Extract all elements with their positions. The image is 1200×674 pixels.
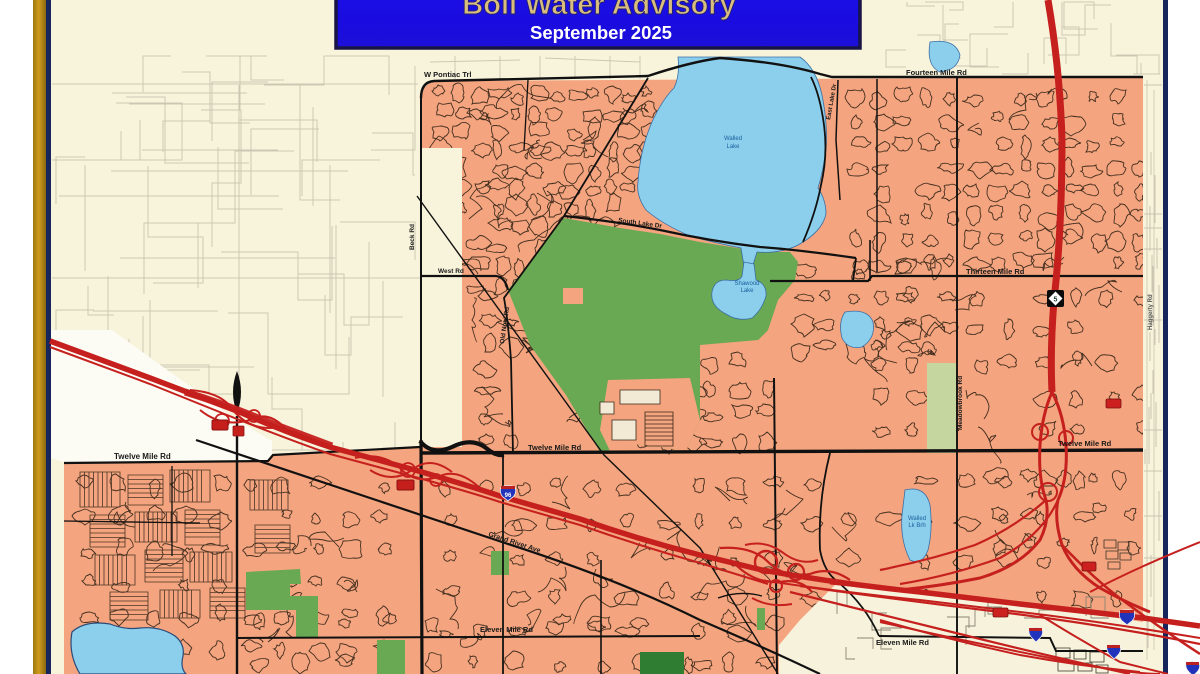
svg-text:W Pontiac Trl: W Pontiac Trl <box>424 70 472 79</box>
svg-text:Shawood: Shawood <box>734 281 759 287</box>
svg-text:West Rd: West Rd <box>438 268 464 275</box>
svg-text:5: 5 <box>1054 297 1058 304</box>
svg-text:96: 96 <box>505 493 512 499</box>
svg-text:Meadowbrook Rd: Meadowbrook Rd <box>957 376 964 430</box>
svg-text:Beck Rd: Beck Rd <box>409 224 416 250</box>
svg-text:Walled: Walled <box>908 516 926 522</box>
svg-text:Boil Water Advisory: Boil Water Advisory <box>462 0 735 21</box>
svg-text:Twelve Mile Rd: Twelve Mile Rd <box>114 452 171 461</box>
svg-text:Eleven Mile Rd: Eleven Mile Rd <box>480 625 533 634</box>
svg-text:Fourteen Mile Rd: Fourteen Mile Rd <box>906 68 967 77</box>
svg-text:September 2025: September 2025 <box>530 22 672 43</box>
svg-text:Haggerty Rd: Haggerty Rd <box>1148 294 1154 330</box>
svg-text:Eleven Mile Rd: Eleven Mile Rd <box>876 638 929 647</box>
svg-text:Twelve Mile Rd: Twelve Mile Rd <box>1058 439 1112 448</box>
svg-text:Lk Brh: Lk Brh <box>908 523 925 529</box>
svg-text:Lake: Lake <box>726 144 740 150</box>
svg-text:Thirteen Mile Rd: Thirteen Mile Rd <box>966 267 1025 276</box>
svg-text:Twelve Mile Rd: Twelve Mile Rd <box>528 443 582 452</box>
svg-text:Lake: Lake <box>740 288 754 294</box>
svg-text:Walled: Walled <box>724 136 742 142</box>
